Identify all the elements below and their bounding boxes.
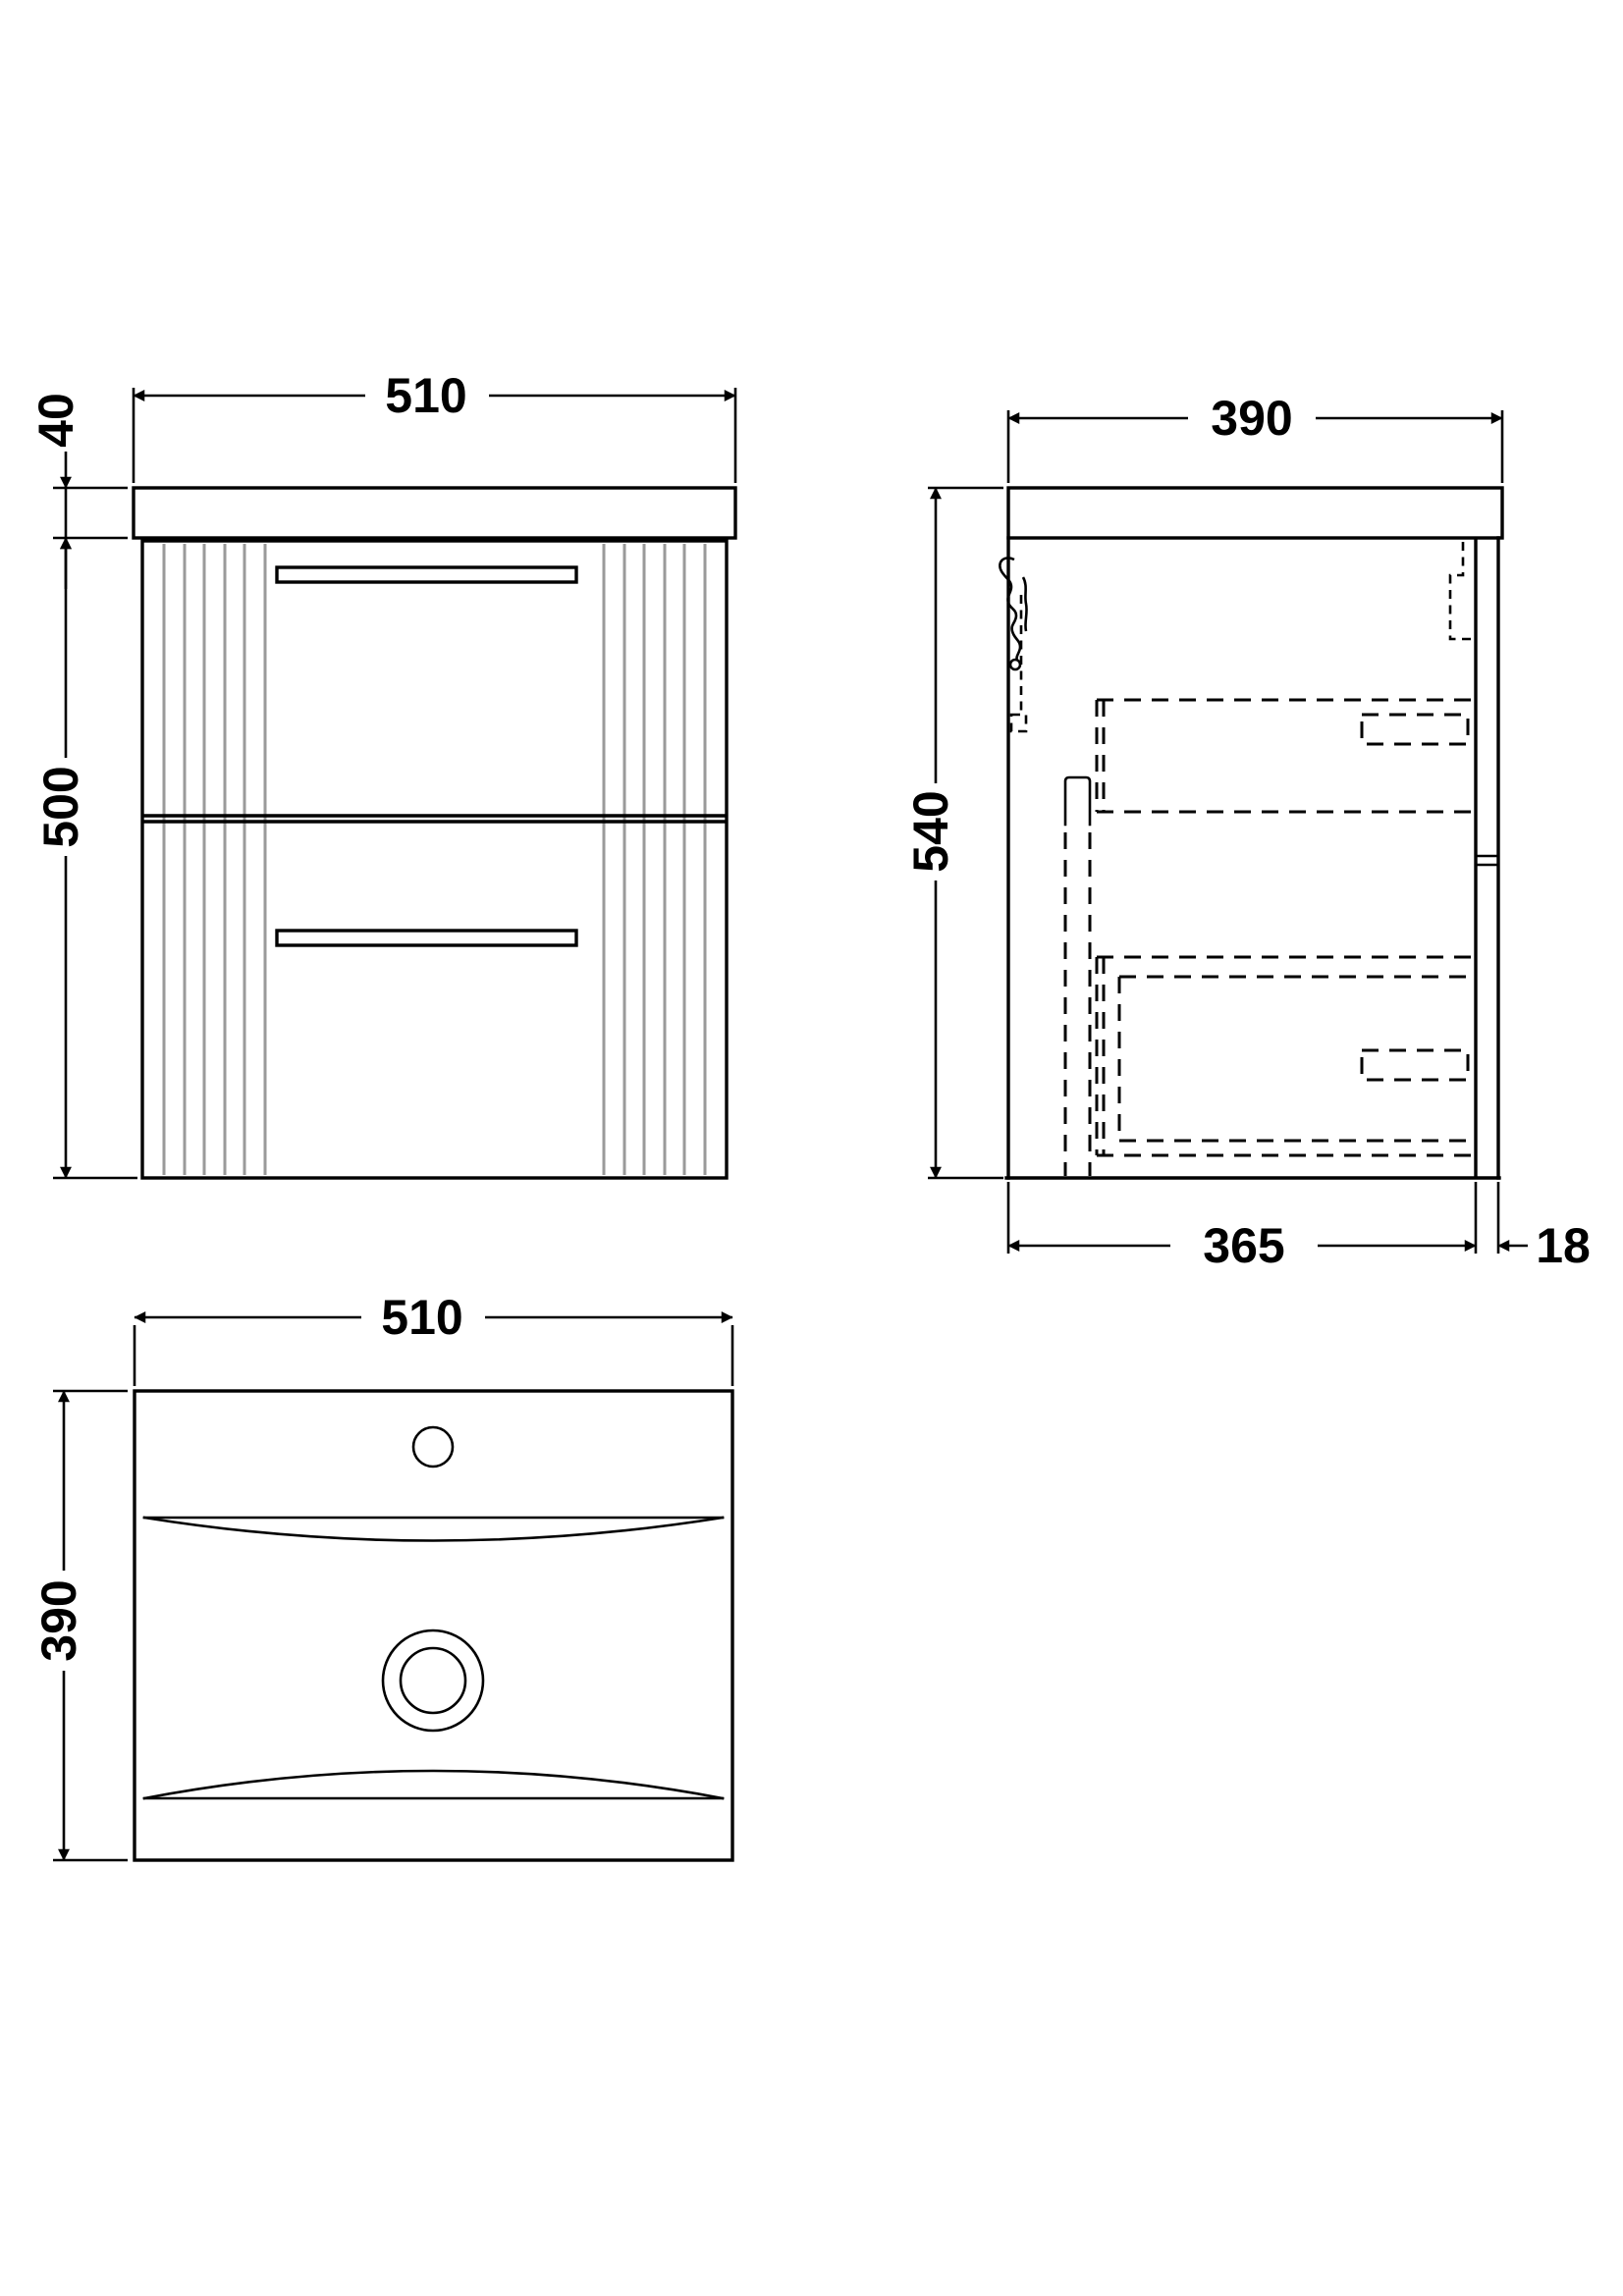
dim-cabinet-height: 500: [33, 538, 137, 1178]
waste-hole-inner: [401, 1648, 465, 1713]
tap-hole: [413, 1427, 453, 1467]
dim-label-worktop-thickness: 40: [28, 393, 83, 448]
dim-label-plan-width: 510: [381, 1290, 462, 1345]
hanging-bracket-front: [1000, 558, 1026, 731]
dim-label-cabinet-depth: 365: [1203, 1218, 1284, 1273]
front-fluting-right: [604, 544, 705, 1175]
waste-hole-outer: [383, 1630, 483, 1731]
dim-label-front-width: 510: [385, 368, 466, 423]
side-worktop: [1008, 488, 1502, 538]
drawer-front-rail-section: [1065, 777, 1090, 1176]
front-drawer-divider: [143, 816, 726, 822]
dim-label-cabinet-height: 500: [33, 766, 88, 847]
basin-outline: [135, 1391, 732, 1860]
dim-back-panel: 18: [1498, 1218, 1591, 1273]
dim-overall-height: 540: [903, 488, 1003, 1178]
technical-drawing-page: 510 40 500: [0, 0, 1623, 2296]
bowl-edge-curve: [144, 1518, 723, 1541]
drawer-runner-hidden: [1362, 715, 1468, 744]
hanging-bracket-back-hidden: [1450, 542, 1474, 639]
front-cabinet-body: [142, 541, 727, 1178]
plan-view: 510 390: [31, 1290, 732, 1860]
bowl-edge-curve: [144, 1771, 723, 1798]
dim-label-side-depth: 390: [1211, 391, 1292, 446]
front-view: 510 40 500: [28, 368, 735, 1178]
front-worktop: [134, 488, 735, 538]
bracket-cam-outline: [1023, 577, 1027, 631]
dim-label-back-panel: 18: [1536, 1218, 1591, 1273]
dim-cabinet-depth: 365: [1008, 1182, 1498, 1273]
dim-side-depth: 390: [1008, 391, 1502, 483]
front-fluting-left: [164, 544, 265, 1175]
bowl-front-edge: [144, 1771, 723, 1798]
dim-worktop-thickness: 40: [28, 393, 128, 589]
bracket-plate-hidden: [1011, 715, 1026, 731]
dim-front-width: 510: [134, 368, 735, 483]
upper-drawer-hidden: [1097, 700, 1473, 812]
bracket-screw: [1010, 660, 1020, 669]
side-view: 390 540 365 18: [903, 391, 1591, 1273]
vanity-unit-dimension-drawing: 510 40 500: [0, 0, 1623, 2296]
bottom-drawer-handle: [277, 931, 576, 945]
lower-drawer-hidden: [1097, 957, 1473, 1155]
bowl-back-edge: [144, 1518, 723, 1541]
dim-label-overall-height: 540: [903, 790, 958, 872]
dim-label-plan-depth: 390: [31, 1579, 86, 1661]
dim-plan-width: 510: [135, 1290, 732, 1386]
rail-solid-top: [1065, 777, 1090, 825]
top-drawer-handle: [277, 567, 576, 582]
drawer-runner-hidden: [1362, 1050, 1468, 1080]
dim-plan-depth: 390: [31, 1391, 128, 1860]
